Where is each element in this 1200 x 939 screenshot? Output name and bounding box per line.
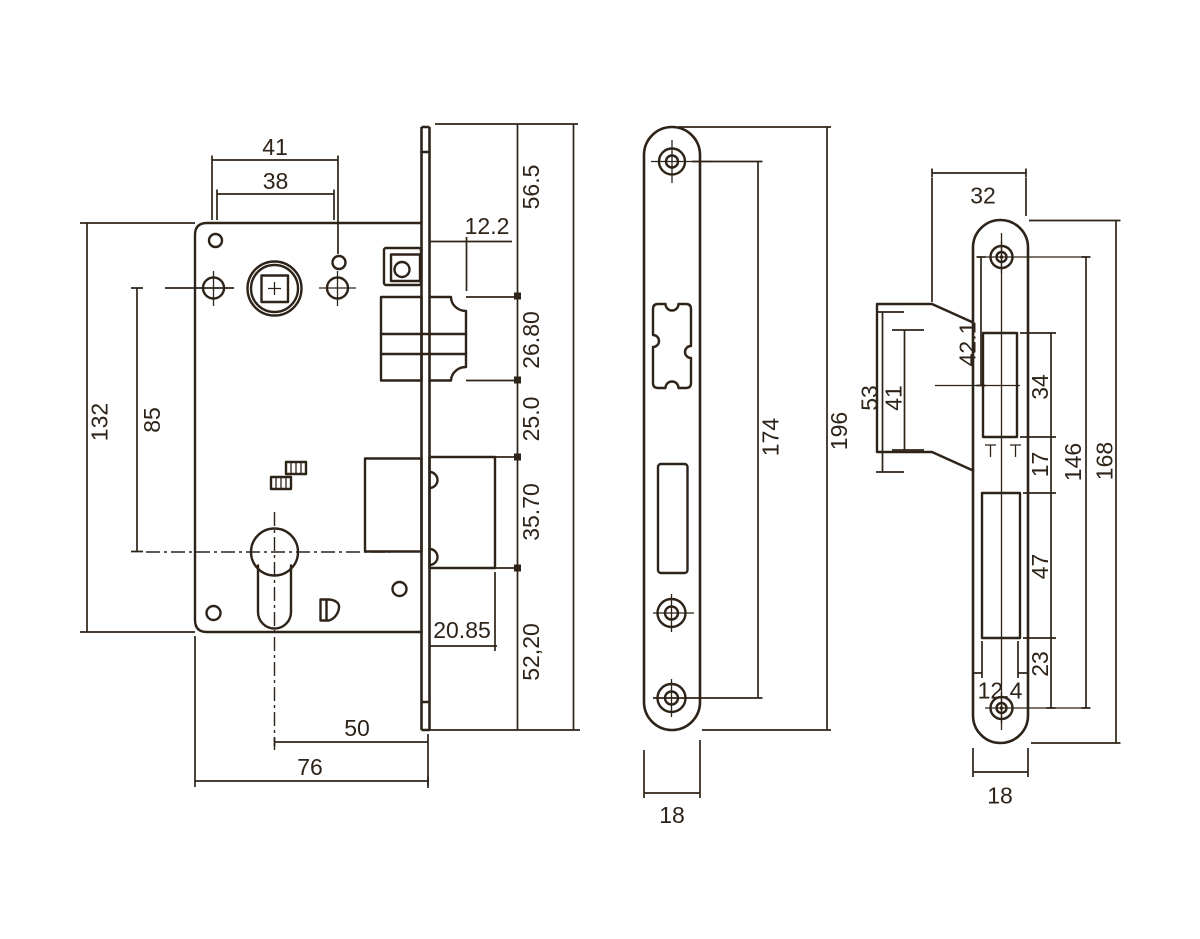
dim-label-41: 41 — [262, 134, 288, 160]
dim-label-32: 32 — [970, 183, 996, 209]
dim-label-26-80: 26.80 — [518, 311, 544, 369]
dim-label-18-strike: 18 — [987, 783, 1013, 809]
technical-drawing-page: 41 38 12.2 56.5 26.80 25.0 35.70 52,20 2… — [0, 0, 1200, 939]
dim-label-41-box: 41 — [881, 385, 907, 411]
dim-label-132: 132 — [87, 403, 113, 441]
dim-label-146: 146 — [1060, 443, 1086, 481]
dim-label-174: 174 — [758, 418, 784, 457]
dim-label-34: 34 — [1027, 374, 1053, 400]
dim-label-42-1: 42.1 — [955, 322, 981, 367]
dim-label-23: 23 — [1027, 651, 1053, 677]
dim-label-76: 76 — [297, 754, 323, 780]
dim-label-53: 53 — [857, 385, 883, 411]
dim-label-12-4: 12.4 — [978, 678, 1023, 704]
dim-label-20-85: 20.85 — [433, 617, 491, 643]
dim-label-25-0: 25.0 — [518, 397, 544, 442]
dim-label-12-2: 12.2 — [465, 213, 510, 239]
dim-label-168: 168 — [1092, 442, 1118, 480]
dim-label-56-5: 56.5 — [518, 165, 544, 210]
dim-label-38: 38 — [263, 168, 289, 194]
dim-label-196: 196 — [826, 412, 852, 450]
dim-label-85: 85 — [139, 407, 165, 433]
dim-label-47: 47 — [1027, 554, 1053, 580]
dim-label-52-20: 52,20 — [518, 623, 544, 681]
dim-label-18-faceplate: 18 — [659, 802, 685, 828]
dim-label-50: 50 — [344, 715, 370, 741]
mortise-lock-drawing: 41 38 12.2 56.5 26.80 25.0 35.70 52,20 2… — [0, 0, 1200, 939]
dim-label-17: 17 — [1027, 452, 1053, 478]
dim-label-35-70: 35.70 — [518, 483, 544, 541]
drawing-background — [0, 0, 1200, 939]
